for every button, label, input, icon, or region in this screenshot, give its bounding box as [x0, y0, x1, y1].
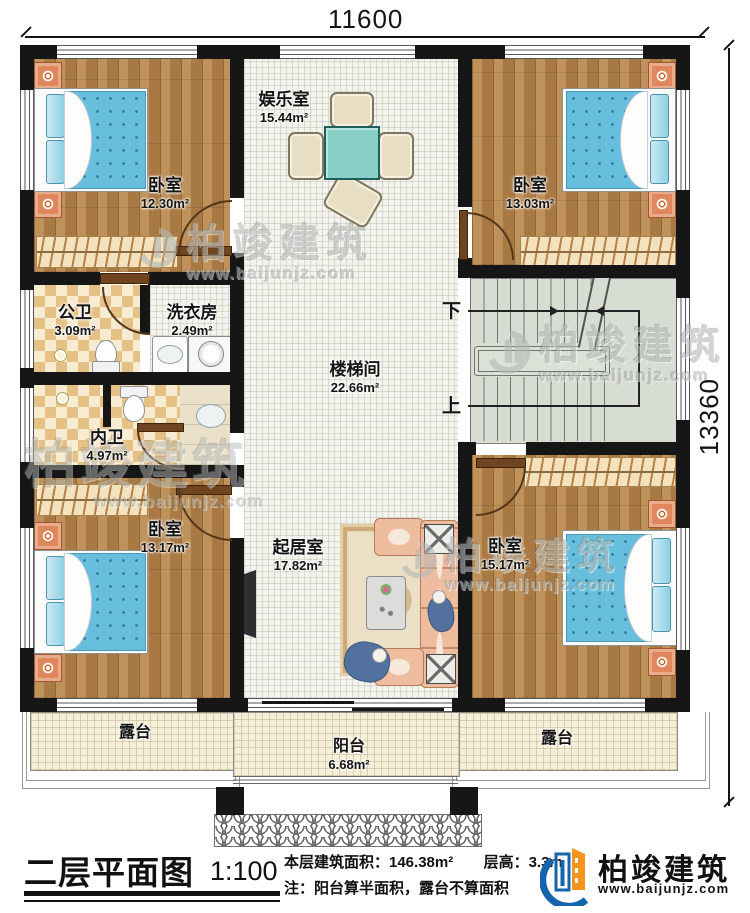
- room-label-balcony: 阳台 6.68m²: [310, 738, 388, 772]
- title-underline: [24, 891, 280, 896]
- bed-pillow: [46, 556, 65, 600]
- nightstand: [648, 190, 676, 218]
- room-label-terrace-left: 露台: [100, 724, 170, 743]
- bed-pillow: [46, 94, 65, 138]
- stair-flight-lower: [470, 377, 606, 441]
- bed-pillow: [652, 586, 671, 632]
- coffee-table: [366, 576, 406, 630]
- wall: [526, 442, 690, 455]
- wall: [458, 455, 472, 698]
- wall: [230, 59, 244, 198]
- window: [20, 90, 34, 190]
- person-head: [372, 648, 387, 663]
- stair-up-label: 上: [442, 391, 461, 418]
- post: [216, 787, 244, 815]
- game-table: [324, 126, 380, 180]
- bed-pillow: [652, 538, 671, 584]
- room-label-living: 起居室 17.82m²: [248, 538, 348, 573]
- note-text: 注：阳台算半面积，露台不算面积: [284, 877, 509, 898]
- window: [676, 90, 690, 190]
- wall: [458, 59, 472, 207]
- wardrobe: [524, 457, 676, 487]
- stair-arrow-left: [595, 306, 604, 316]
- side-table: [424, 524, 454, 554]
- wardrobe: [36, 484, 148, 516]
- roof-tiles: [214, 814, 482, 847]
- dimension-right: 13360: [694, 378, 725, 455]
- wall: [148, 272, 244, 285]
- toilet: [123, 395, 145, 422]
- room-label-bedroom-tr: 卧室 13.03m²: [480, 176, 580, 211]
- room-label-terrace-right: 露台: [522, 730, 592, 749]
- stair-up-line: [468, 405, 640, 407]
- window: [57, 698, 197, 712]
- window: [20, 388, 34, 462]
- wall: [103, 385, 111, 427]
- wall: [230, 538, 244, 698]
- wall: [20, 465, 244, 478]
- window: [676, 528, 690, 650]
- balcony-railing: [233, 776, 458, 785]
- floor-drain: [56, 392, 69, 405]
- window: [20, 528, 34, 648]
- bed-pillow: [650, 140, 669, 184]
- nightstand: [648, 500, 676, 528]
- stair-path-line: [638, 311, 640, 406]
- post: [450, 787, 478, 815]
- room-label-public-bath: 公卫 3.09m²: [40, 303, 110, 338]
- wall: [458, 442, 476, 455]
- brand-website: www.baijunjz.com: [598, 881, 729, 896]
- room-label-stairwell: 楼梯间 22.66m²: [305, 360, 405, 395]
- bed-pillow: [46, 140, 65, 184]
- brand-logo-icon: [540, 844, 596, 906]
- floor-area-text: 本层建筑面积：146.38m²: [284, 854, 453, 871]
- sofa-seat: [374, 518, 424, 556]
- side-table: [426, 654, 456, 684]
- door-panel: [262, 701, 354, 704]
- nightstand: [648, 648, 676, 676]
- window: [676, 298, 690, 420]
- floor-plan-page: 柏竣建筑 www.baijunjz.com 柏竣建筑 www.baijunjz.…: [0, 0, 750, 913]
- wall: [20, 272, 100, 285]
- nightstand: [648, 62, 676, 90]
- washer-drum: [198, 341, 224, 367]
- stair-arrow-right: [550, 306, 559, 316]
- nightstand: [34, 654, 62, 682]
- stair-down-label: 下: [442, 296, 461, 323]
- room-label-entertainment: 娱乐室 15.44m²: [234, 90, 334, 125]
- window: [280, 45, 415, 59]
- dimension-line-top: [25, 36, 705, 38]
- room-label-private-bath: 内卫 4.97m²: [72, 428, 142, 463]
- nightstand: [34, 522, 62, 550]
- room-label-bedroom-tl: 卧室 12.30m²: [115, 176, 215, 211]
- door-leaf: [100, 273, 150, 284]
- stair-rail: [474, 346, 610, 376]
- sink-basin: [196, 404, 226, 428]
- nightstand: [34, 62, 62, 90]
- chair: [288, 132, 324, 180]
- floor-drain: [54, 349, 67, 362]
- floor-area-info: 本层建筑面积：146.38m² 层高：3.3m: [284, 851, 563, 872]
- bed-pillow: [46, 602, 65, 646]
- person-head: [432, 590, 446, 604]
- window: [505, 45, 643, 59]
- room-label-bedroom-bl: 卧室 13.17m²: [115, 520, 215, 555]
- wardrobe: [36, 236, 178, 268]
- window: [505, 698, 645, 712]
- dimension-top: 11600: [328, 4, 403, 35]
- window: [20, 290, 34, 368]
- nightstand: [34, 190, 62, 218]
- wall: [458, 265, 690, 278]
- door-panel: [352, 708, 444, 711]
- drawing-title: 二层平面图: [24, 846, 194, 894]
- title-underline-thin: [24, 900, 280, 902]
- tv: [244, 570, 256, 638]
- wall: [20, 372, 244, 385]
- room-label-laundry: 洗衣房 2.49m²: [152, 303, 232, 338]
- dimension-line-right: [728, 48, 730, 806]
- chair: [330, 92, 374, 128]
- bed-pillow: [650, 94, 669, 138]
- window: [57, 45, 197, 59]
- drawing-scale: 1:100: [210, 856, 278, 887]
- wardrobe: [520, 236, 676, 268]
- sink-basin: [157, 345, 183, 364]
- chair: [378, 132, 414, 180]
- room-label-bedroom-br: 卧室 15.17m²: [455, 537, 555, 572]
